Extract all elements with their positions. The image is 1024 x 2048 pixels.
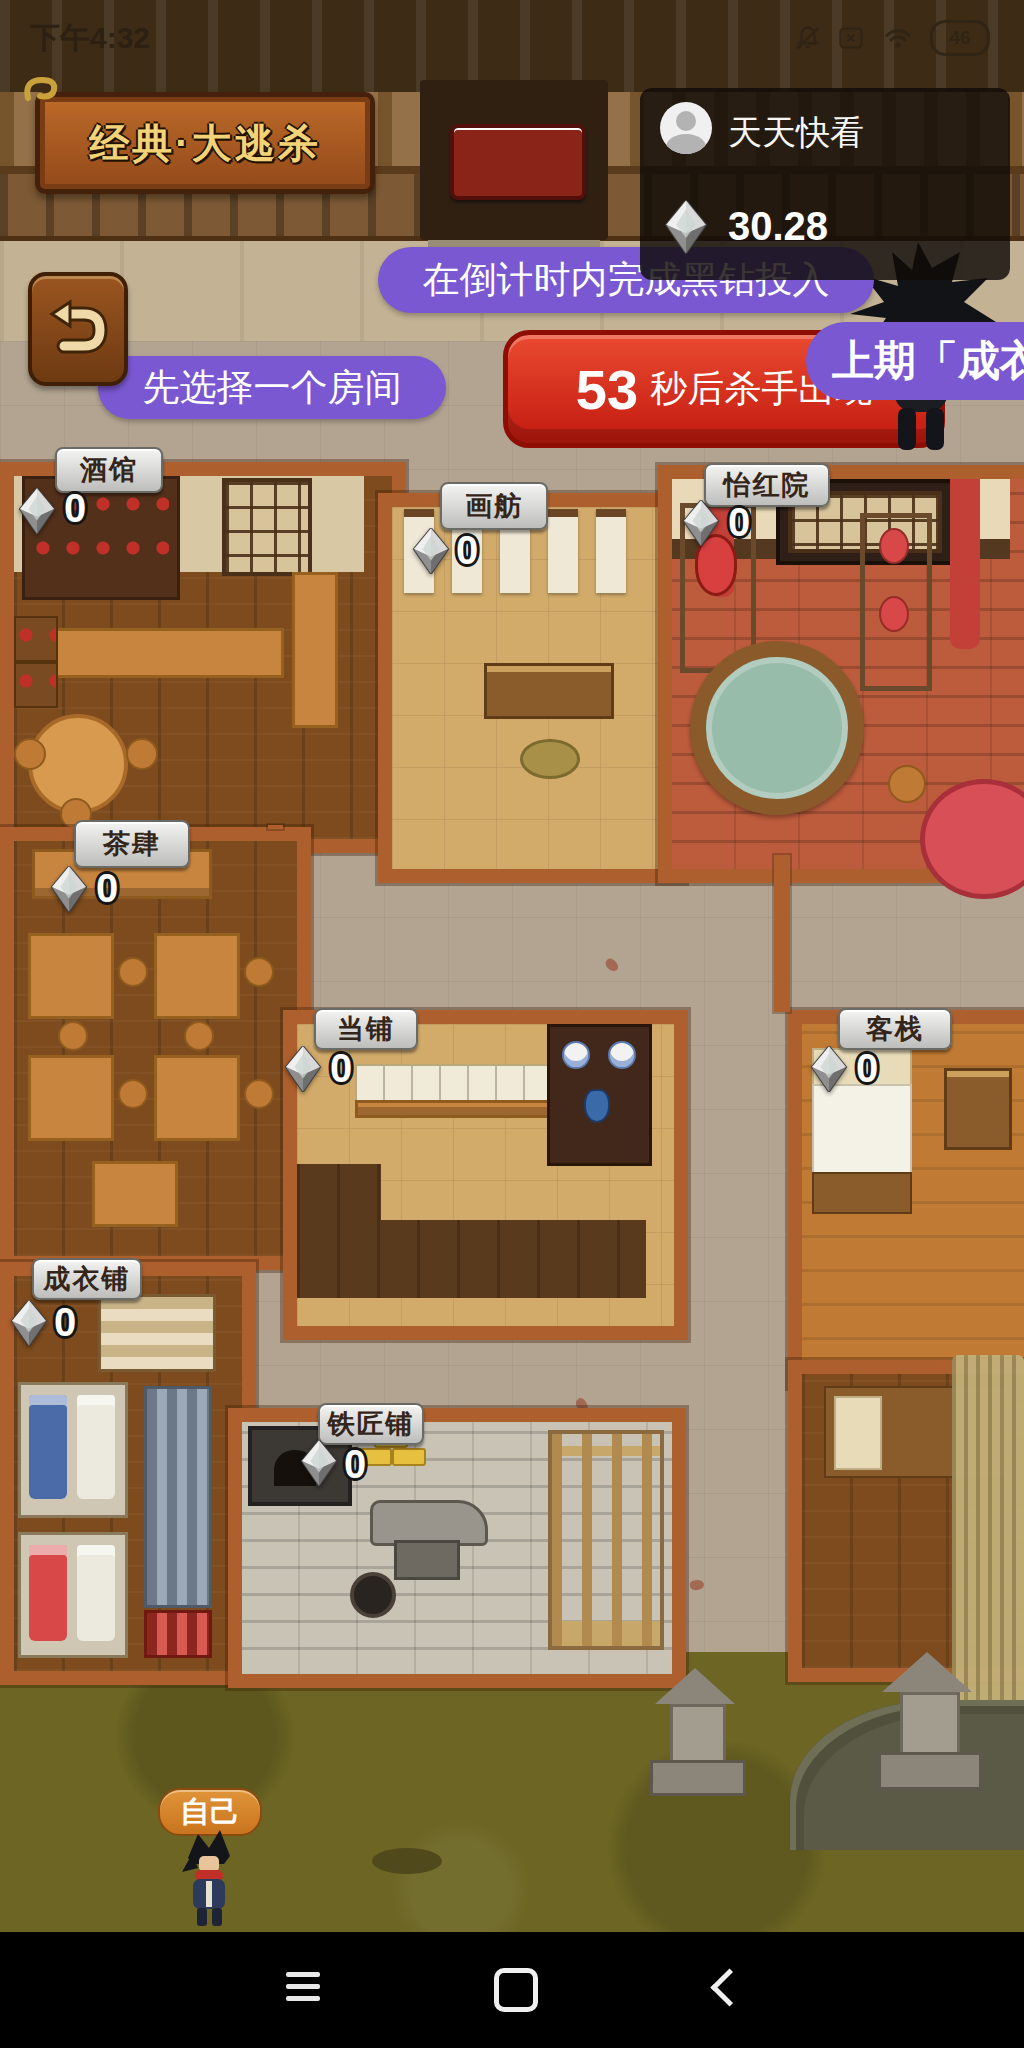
pawn-backroom xyxy=(297,1220,646,1298)
tavern-bench xyxy=(292,572,338,728)
self-marker-text: 自己 xyxy=(180,1792,240,1833)
stool xyxy=(14,738,46,770)
room-name: 怡红院 xyxy=(724,467,811,503)
plaque-brothel: 怡红院 xyxy=(704,463,830,507)
room-blacksmith[interactable] xyxy=(228,1408,686,1688)
clock: 下午4:32 xyxy=(30,18,150,59)
stake-count: 0 xyxy=(54,1300,76,1345)
room-tavern[interactable] xyxy=(0,462,406,853)
fabric-rolls xyxy=(144,1386,212,1608)
stone-lantern xyxy=(868,1652,986,1792)
bed-frame xyxy=(812,1172,912,1214)
gate-entrance xyxy=(420,80,608,240)
select-room-hint-bubble: 先选择一个房间 xyxy=(98,356,446,419)
dirt-patch xyxy=(372,1848,442,1874)
wall-segment xyxy=(268,825,283,829)
stake-count: 0 xyxy=(344,1442,366,1487)
wall-scroll xyxy=(596,509,626,593)
stake-count: 0 xyxy=(96,866,118,911)
flower-crate xyxy=(14,662,58,708)
mute-icon xyxy=(794,24,822,52)
display-stand xyxy=(860,513,932,691)
mode-title: 经典·大逃杀 xyxy=(89,116,320,171)
pawn-cabinet xyxy=(547,1024,652,1166)
stool xyxy=(118,957,148,987)
last-round-text: 上期「成衣铺 xyxy=(832,333,1024,389)
tea-table xyxy=(154,933,240,1019)
stool xyxy=(58,1021,88,1051)
wall-scroll xyxy=(548,509,578,593)
stool xyxy=(888,765,926,803)
diamond-icon xyxy=(10,1300,48,1346)
pawn-backroom xyxy=(297,1164,381,1220)
stool xyxy=(118,1079,148,1109)
tea-table xyxy=(28,1055,114,1141)
mode-title-plaque: 经典·大逃杀 xyxy=(35,92,375,194)
wood-fence xyxy=(548,1430,664,1650)
battery-level: 46 xyxy=(949,27,970,49)
player-character xyxy=(180,1828,238,1928)
user-name: 天天快看 xyxy=(728,110,864,156)
tavern-bench xyxy=(50,628,284,678)
room-name: 铁匠铺 xyxy=(328,1406,415,1442)
diamond-icon xyxy=(50,866,88,912)
low-table xyxy=(484,663,614,719)
cloud-ornament-icon xyxy=(22,74,76,104)
stake-count: 0 xyxy=(856,1046,878,1091)
bucket xyxy=(350,1572,396,1618)
flower-crate xyxy=(14,616,58,662)
stool xyxy=(184,1021,214,1051)
stone-lantern xyxy=(640,1668,750,1798)
room-name: 画舫 xyxy=(465,488,523,524)
gate-plaque xyxy=(450,124,586,200)
stake-count: 0 xyxy=(456,528,478,573)
side-table xyxy=(944,1068,1012,1150)
plaque-teahouse: 茶肆 xyxy=(74,820,190,868)
curtain xyxy=(950,479,980,649)
back-arrow-icon xyxy=(48,298,108,360)
fabric-shelf xyxy=(98,1294,216,1372)
nav-menu-button[interactable] xyxy=(286,1972,320,2008)
tea-table xyxy=(154,1055,240,1141)
fabric-rolls-red xyxy=(144,1610,212,1658)
avatar[interactable] xyxy=(660,102,712,154)
red-table xyxy=(920,779,1024,899)
stake-count: 0 xyxy=(64,486,86,531)
wall-segment xyxy=(774,855,790,1012)
plaque-pawnshop: 当铺 xyxy=(314,1008,418,1050)
anvil-base xyxy=(394,1540,460,1580)
stake-count: 0 xyxy=(728,500,750,545)
battery-icon: 46 xyxy=(930,20,990,56)
cushion xyxy=(520,739,580,779)
stool xyxy=(126,738,158,770)
tea-table xyxy=(28,933,114,1019)
user-panel: 天天快看 30.28 xyxy=(640,88,1010,280)
bed-sheet xyxy=(812,1084,912,1176)
stool xyxy=(244,1079,274,1109)
stool xyxy=(244,957,274,987)
diamond-icon xyxy=(682,500,720,546)
killer-timer-seconds: 53 xyxy=(576,357,638,422)
gold-ingot xyxy=(392,1448,426,1466)
room-name: 酒馆 xyxy=(80,452,138,488)
tavern-window xyxy=(222,478,312,576)
no-sim-icon xyxy=(836,24,866,52)
select-room-hint-text: 先选择一个房间 xyxy=(143,363,402,413)
nav-home-button[interactable] xyxy=(494,1968,538,2012)
game-screen: 酒馆 0 画舫 0 怡红院 0 茶肆 0 当铺 0 客栈 0 成衣铺 0 铁匠铺… xyxy=(0,0,1024,2048)
plaque-inn: 客栈 xyxy=(838,1008,952,1050)
clothes-rack xyxy=(18,1532,128,1658)
plaque-clothing: 成衣铺 xyxy=(32,1258,142,1300)
plaque-boat: 画舫 xyxy=(440,482,548,530)
room-teahouse[interactable] xyxy=(0,827,311,1270)
diamond-icon xyxy=(300,1440,338,1486)
room-name: 茶肆 xyxy=(103,826,161,862)
room-name: 当铺 xyxy=(337,1011,395,1047)
status-bar: 下午4:32 46 xyxy=(0,0,1024,60)
bath-tub xyxy=(690,641,864,815)
diamond-icon xyxy=(810,1046,848,1092)
room-name: 成衣铺 xyxy=(44,1261,131,1297)
wifi-icon xyxy=(880,23,916,53)
tea-table xyxy=(92,1161,178,1227)
stake-count: 0 xyxy=(330,1046,352,1091)
clothes-rack xyxy=(18,1382,128,1518)
diamond-icon xyxy=(412,528,450,574)
last-round-bubble: 上期「成衣铺 xyxy=(806,322,1024,400)
diamond-balance: 30.28 xyxy=(728,204,828,249)
diamond-icon xyxy=(18,488,56,534)
diamond-icon xyxy=(284,1046,322,1092)
back-button[interactable] xyxy=(28,272,128,386)
plaque-blacksmith: 铁匠铺 xyxy=(318,1403,424,1445)
diamond-icon xyxy=(664,200,708,254)
room-name: 客栈 xyxy=(866,1011,924,1047)
